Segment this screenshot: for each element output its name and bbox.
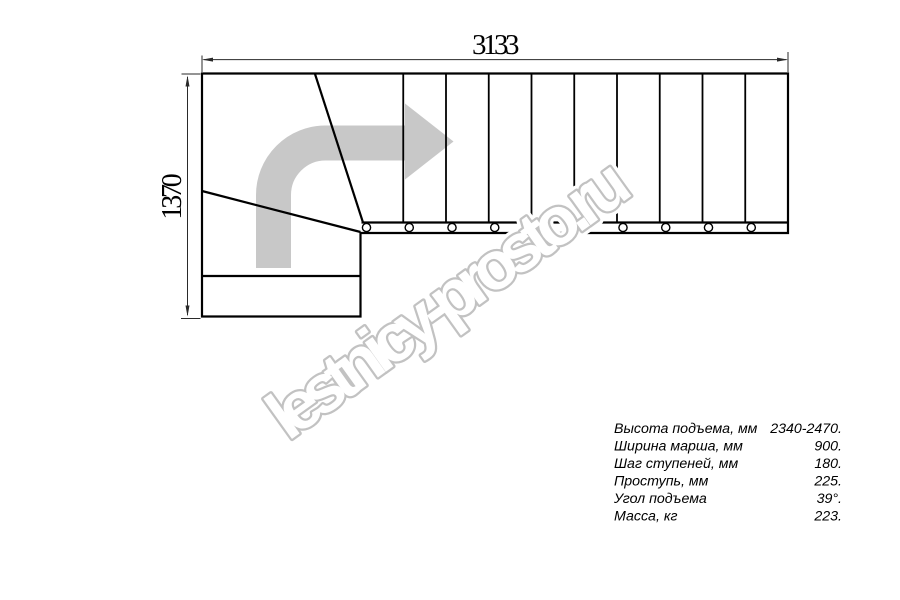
svg-text:223.: 223. bbox=[813, 509, 842, 525]
svg-text:39°.: 39°. bbox=[817, 491, 842, 507]
svg-text:Ширина марша, мм: Ширина марша, мм bbox=[614, 439, 743, 455]
svg-text:Высота подъема, мм: Высота подъема, мм bbox=[614, 421, 758, 437]
svg-text:3133: 3133 bbox=[472, 29, 519, 61]
svg-text:1370: 1370 bbox=[157, 174, 188, 219]
svg-text:900.: 900. bbox=[814, 439, 842, 455]
svg-text:Угол подъема: Угол подъема bbox=[613, 491, 707, 507]
svg-text:Масса, кг: Масса, кг bbox=[614, 509, 678, 525]
svg-text:180.: 180. bbox=[814, 456, 842, 472]
svg-text:Проступь, мм: Проступь, мм bbox=[614, 474, 709, 490]
svg-text:225.: 225. bbox=[813, 474, 842, 490]
svg-text:Шаг ступеней, мм: Шаг ступеней, мм bbox=[614, 456, 738, 472]
svg-text:2340-2470.: 2340-2470. bbox=[769, 421, 842, 437]
